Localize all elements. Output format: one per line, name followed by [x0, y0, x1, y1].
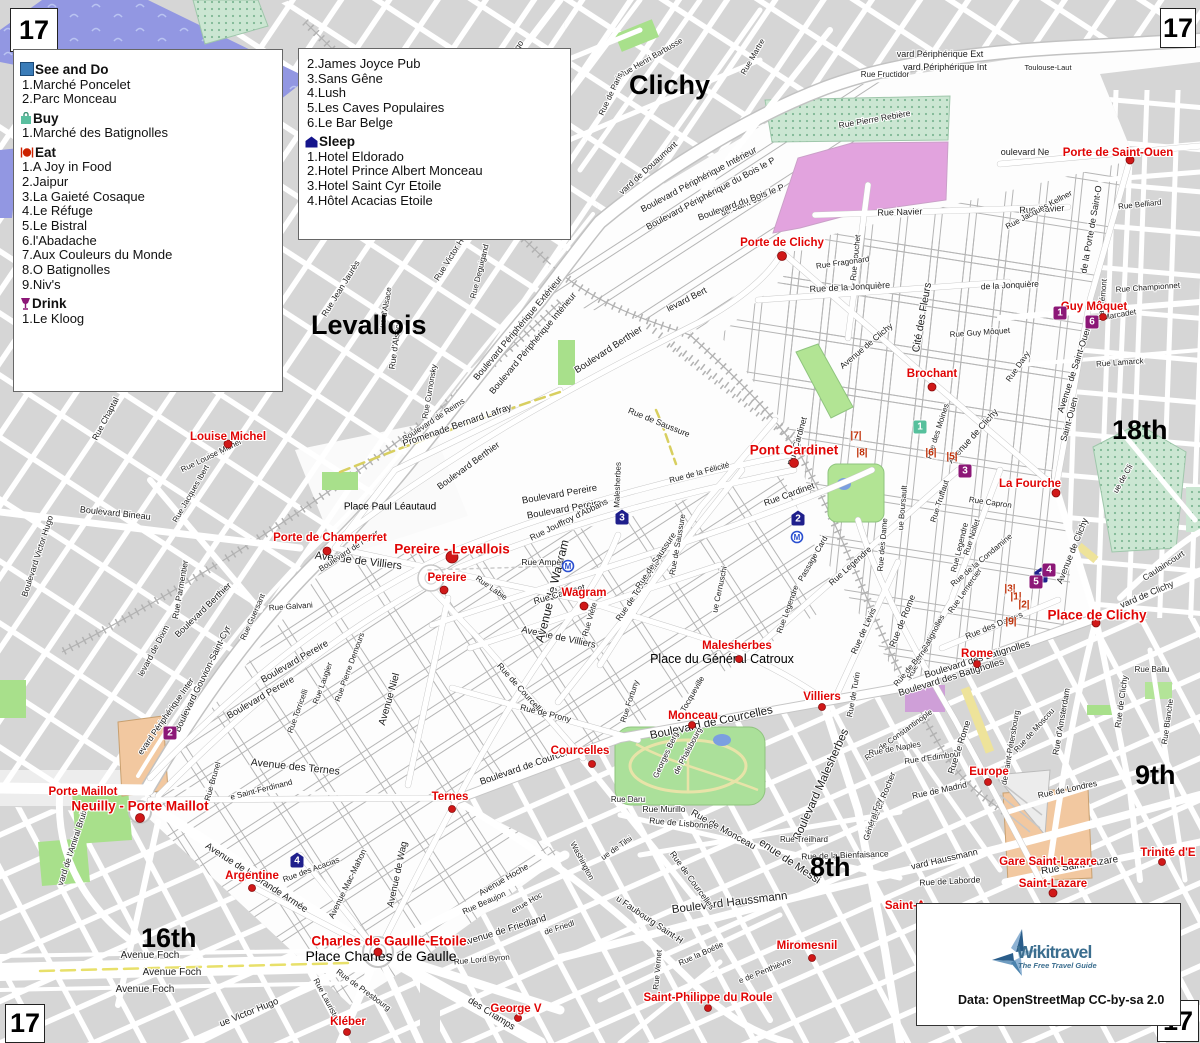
- svg-text:The Free Travel Guide: The Free Travel Guide: [1018, 961, 1097, 970]
- svg-text:M: M: [794, 533, 801, 542]
- svg-text:Data: OpenStreetMap CC-by-sa 2: Data: OpenStreetMap CC-by-sa 2.0: [958, 993, 1164, 1007]
- svg-text:M: M: [565, 562, 572, 571]
- svg-text:Wikitravel: Wikitravel: [1017, 942, 1092, 962]
